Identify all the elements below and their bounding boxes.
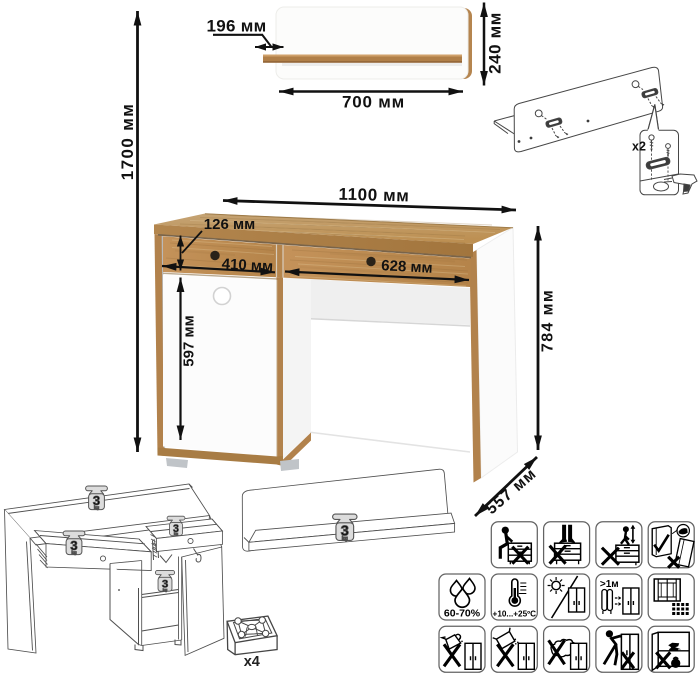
svg-text:196 мм: 196 мм <box>206 17 266 36</box>
svg-text:557 мм: 557 мм <box>483 465 540 518</box>
svg-text:126 мм: 126 мм <box>204 216 255 233</box>
svg-text:410 мм: 410 мм <box>221 256 273 276</box>
svg-text:1700 мм: 1700 мм <box>118 103 137 181</box>
svg-text:700 мм: 700 мм <box>342 93 405 112</box>
svg-text:60-70%: 60-70% <box>444 608 481 620</box>
svg-text:+10...+25ºC: +10...+25ºC <box>493 610 537 619</box>
svg-text:x2: x2 <box>632 140 646 154</box>
svg-text:240 мм: 240 мм <box>486 12 505 74</box>
svg-text:784 мм: 784 мм <box>540 289 557 352</box>
svg-text:>1м: >1м <box>600 579 619 590</box>
svg-text:1100 мм: 1100 мм <box>338 185 409 206</box>
svg-text:628 мм: 628 мм <box>381 257 433 277</box>
svg-text:597 мм: 597 мм <box>181 315 198 366</box>
svg-text:x4: x4 <box>244 654 260 670</box>
